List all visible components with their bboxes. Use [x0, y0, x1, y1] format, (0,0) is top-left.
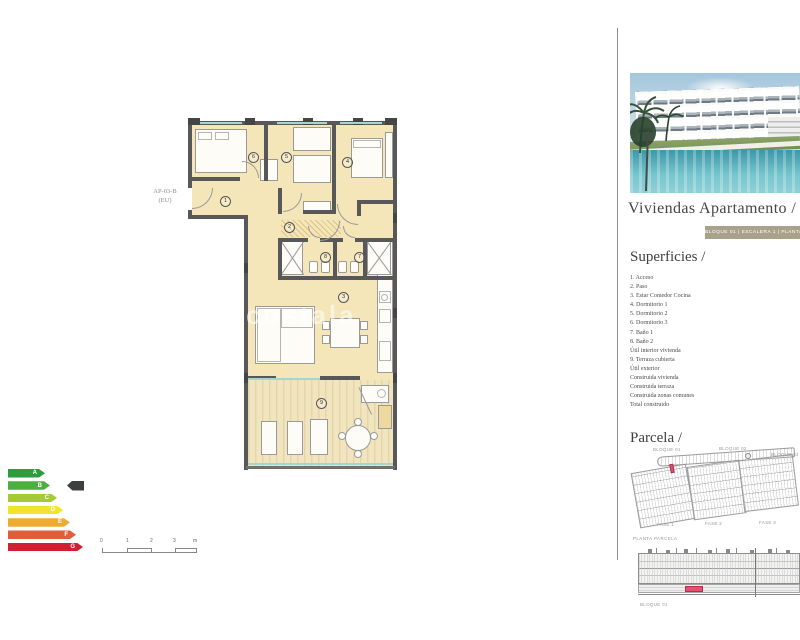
- wall: [332, 121, 336, 212]
- scale-tick-label: 2: [150, 538, 153, 544]
- bed-single: [293, 155, 331, 183]
- superficies-item: Construida zonas comunes: [630, 392, 800, 401]
- floor-plan: 1 2 3 4 5 6 7 8 9: [185, 113, 420, 480]
- block-label: BLOQUE 01: [653, 447, 681, 452]
- toilet: [309, 261, 318, 273]
- watermark: costala: [246, 300, 357, 331]
- energy-arrow-a: A: [8, 469, 45, 478]
- planta-parcela-caption: PLANTA PARCELA: [633, 536, 677, 541]
- bed-single: [293, 127, 331, 151]
- scale-segment: [175, 548, 196, 549]
- terrace-edge-wall: [246, 466, 395, 469]
- superficies-list: 1. Acceso 2. Paso 3. Estar Comedor Cocin…: [630, 274, 800, 410]
- toilet: [338, 261, 347, 273]
- room-number-badge: 7: [354, 252, 365, 263]
- column: [393, 308, 397, 318]
- terrace-glass-balustrade: [248, 463, 393, 465]
- energy-letter: B: [38, 483, 42, 489]
- sink-basin: [381, 294, 388, 301]
- chair: [360, 335, 368, 344]
- window: [277, 122, 327, 124]
- site-block-fase3: [738, 454, 799, 512]
- chair: [338, 432, 346, 440]
- fase-label: FASE 1: [657, 522, 674, 527]
- energy-row: B: [8, 481, 118, 490]
- energy-arrow-g: G: [8, 543, 83, 552]
- elevation-block-label: BLOQUE 01: [640, 602, 668, 607]
- elevation-base: [638, 584, 800, 593]
- energy-letter: C: [45, 495, 49, 501]
- superficies-item: 1. Acceso: [630, 274, 800, 283]
- wall: [278, 238, 308, 242]
- block-label: BLOQUE 03: [771, 452, 799, 457]
- superficies-heading: Superficies /: [630, 249, 705, 266]
- scale-unit-label: m: [193, 538, 197, 544]
- wall: [244, 215, 248, 470]
- superficies-item: 7. Baño 1: [630, 329, 800, 338]
- column: [385, 118, 397, 125]
- superficies-item: 5. Dormitorio 2: [630, 310, 800, 319]
- wall: [357, 200, 397, 204]
- scale-segment: [127, 548, 151, 549]
- scale-tick: [102, 548, 103, 553]
- fase-label: FASE 2: [705, 521, 722, 526]
- scale-tick: [196, 548, 197, 553]
- stove: [379, 309, 391, 323]
- window: [340, 122, 382, 124]
- round-table: [345, 425, 371, 451]
- page: { "floor_plan": { "unit_label_line1": "A…: [0, 0, 800, 640]
- wall: [188, 177, 240, 181]
- unit-code-suffix: (EU): [144, 196, 186, 205]
- wall: [355, 238, 393, 242]
- room-number-badge: 8: [320, 252, 331, 263]
- superficies-item: Total construido: [630, 401, 800, 410]
- ground-line: [638, 594, 800, 595]
- elevation-facade: [638, 553, 800, 584]
- wall: [278, 188, 282, 214]
- bush: [630, 117, 656, 147]
- fridge: [379, 341, 391, 361]
- wall: [320, 376, 360, 380]
- room-number-badge: 1: [220, 196, 231, 207]
- column: [188, 118, 200, 125]
- unit-banner: BLOQUE 01 | ESCALERA 1 | PLANTA: [705, 226, 800, 239]
- building-photo: [630, 73, 800, 193]
- scale-bar: 0 1 2 3 m: [100, 538, 210, 558]
- site-block-fase1: [631, 464, 696, 529]
- column: [393, 213, 397, 223]
- sliding-glass-door: [248, 378, 320, 380]
- elevation-highlight-unit: [685, 586, 703, 592]
- energy-letter: A: [33, 470, 37, 476]
- scale-tick-label: 1: [126, 538, 129, 544]
- chair: [322, 335, 330, 344]
- wall: [278, 238, 282, 280]
- pillow: [353, 140, 381, 148]
- superficies-item: 6. Dormitorio 3: [630, 319, 800, 328]
- chair: [354, 418, 362, 426]
- closet: [260, 159, 278, 181]
- parcela-heading: Parcela /: [630, 430, 682, 447]
- energy-arrow-d: D: [8, 506, 63, 515]
- energy-row: D: [8, 506, 118, 515]
- room-number-badge: 6: [248, 152, 259, 163]
- wardrobe: [385, 132, 393, 178]
- energy-letter: G: [70, 544, 75, 550]
- superficies-item: 8. Baño 2: [630, 338, 800, 347]
- wall: [303, 210, 336, 214]
- outdoor-counter: [378, 405, 392, 429]
- chair: [370, 432, 378, 440]
- scale-tick: [151, 548, 152, 553]
- sun-lounger: [287, 421, 303, 455]
- column: [393, 373, 397, 383]
- sun-lounger: [310, 419, 328, 455]
- unit-code: AP-03-B: [144, 187, 186, 196]
- superficies-item: 3. Estar Comedor Cocina: [630, 292, 800, 301]
- superficies-item: 9. Terraza cubierta: [630, 356, 800, 365]
- chair: [360, 321, 368, 330]
- fase-label: FASE 3: [759, 520, 776, 525]
- elevation-mast: [755, 548, 756, 597]
- wall: [333, 238, 337, 280]
- pillow: [215, 132, 229, 140]
- room-number-badge: 5: [281, 152, 292, 163]
- energy-row: E: [8, 518, 118, 527]
- divider-line: [617, 28, 618, 560]
- column: [245, 118, 255, 125]
- site-block-fase2: [687, 460, 747, 521]
- pillow: [198, 132, 212, 140]
- scale-tick-label: 3: [173, 538, 176, 544]
- wall: [188, 215, 245, 219]
- scale-tick-label: 0: [100, 538, 103, 544]
- page-title: Viviendas Apartamento /: [628, 200, 800, 218]
- energy-row: A: [8, 469, 118, 478]
- superficies-item: Útil exterior: [630, 365, 800, 374]
- energy-arrow-e: E: [8, 518, 70, 527]
- site-plan: BLOQUE 01 BLOQUE 02 BLOQUE 03 FASE 1 FAS…: [633, 446, 800, 530]
- superficies-item: 4. Dormitorio 1: [630, 301, 800, 310]
- wall: [393, 121, 397, 470]
- energy-arrow-c: C: [8, 494, 57, 503]
- energy-letter: E: [58, 519, 62, 525]
- unit-label: AP-03-B (EU): [144, 187, 186, 205]
- column: [244, 263, 248, 273]
- room-number-badge: 2: [284, 222, 295, 233]
- outdoor-basin: [377, 389, 386, 398]
- wall: [264, 121, 268, 181]
- energy-row: C: [8, 494, 118, 503]
- energy-arrow-b: B: [8, 481, 50, 490]
- superficies-item: Útil interior vivienda: [630, 347, 800, 356]
- superficies-item: Construida vivienda: [630, 374, 800, 383]
- sun-lounger: [261, 421, 277, 455]
- elevation-drawing: [638, 548, 800, 604]
- room-number-badge: 4: [342, 157, 353, 168]
- energy-letter: F: [64, 532, 68, 538]
- superficies-item: Construida terraza: [630, 383, 800, 392]
- chair: [354, 450, 362, 458]
- energy-arrow-f: F: [8, 530, 76, 539]
- energy-letter: D: [51, 507, 55, 513]
- superficies-item: 2. Paso: [630, 283, 800, 292]
- window: [200, 122, 242, 124]
- scale-line: [102, 552, 197, 553]
- block-label: BLOQUE 02: [719, 446, 747, 451]
- room-number-badge: 9: [316, 398, 327, 409]
